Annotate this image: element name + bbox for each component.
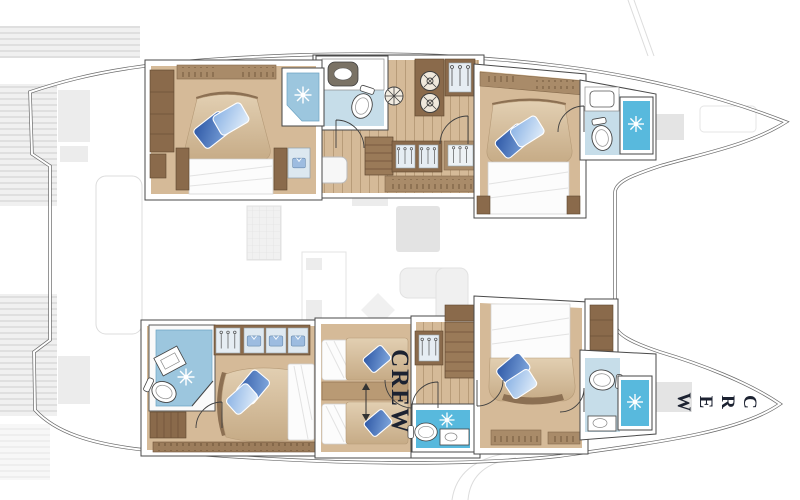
salon-rug-ghost bbox=[247, 206, 281, 260]
sink-icon bbox=[440, 429, 469, 445]
double-bed-icon bbox=[217, 364, 314, 442]
shower-icon bbox=[618, 376, 652, 430]
salon-table-ghost bbox=[396, 206, 440, 252]
transom-step-ghost bbox=[60, 146, 88, 162]
nightstand bbox=[274, 148, 287, 190]
hanger-closet-icon bbox=[445, 59, 475, 96]
anchor-locker-ghost bbox=[700, 106, 756, 132]
vent-strip bbox=[153, 442, 315, 452]
shelf-strip bbox=[177, 65, 276, 79]
bed-foot bbox=[189, 159, 273, 194]
shower-icon bbox=[282, 68, 324, 126]
aft-deck-slats-ghost-2 bbox=[0, 424, 50, 480]
floorplan-canvas: CREW bbox=[0, 0, 800, 500]
crew-cabin-label: CREW bbox=[386, 349, 413, 435]
nightstand bbox=[176, 148, 189, 190]
cabinet-strip bbox=[385, 176, 478, 192]
shower-icon bbox=[620, 97, 653, 154]
wardrobe-icon bbox=[214, 325, 310, 355]
crew-bow-letter: E bbox=[695, 396, 716, 409]
boom-ghost-line bbox=[628, 0, 648, 56]
stairs-icon bbox=[445, 322, 477, 378]
washer-dryer-icon bbox=[415, 59, 444, 116]
cabinet bbox=[445, 305, 475, 321]
starboard-aft-cabin bbox=[141, 320, 324, 456]
crew-bow-letter: W bbox=[673, 393, 694, 412]
foredeck-hatch-ghost-port bbox=[652, 114, 684, 140]
starboard-aft-bathroom bbox=[142, 325, 215, 411]
hanger-closet-icon bbox=[415, 331, 443, 365]
double-bed-icon bbox=[489, 304, 575, 405]
crew-bow-letter: C bbox=[739, 395, 760, 409]
cabinet-strip bbox=[491, 430, 580, 445]
transom-locker-ghost-2 bbox=[58, 356, 90, 404]
port-aft-cabin bbox=[145, 60, 324, 200]
nightstand bbox=[477, 196, 490, 214]
crew-bow-label: CREW bbox=[673, 393, 760, 412]
aft-deck-slats-ghost bbox=[0, 26, 140, 58]
port-companionway bbox=[301, 55, 484, 198]
starboard-companionway bbox=[408, 305, 480, 458]
double-bed-icon bbox=[487, 99, 572, 215]
closet-row bbox=[392, 141, 477, 172]
stairs-icon bbox=[365, 137, 393, 175]
yacht-floorplan: CREW bbox=[0, 0, 800, 500]
bench-icon bbox=[150, 412, 186, 438]
nightstand bbox=[567, 196, 580, 214]
transom-locker-ghost bbox=[58, 90, 90, 142]
bed-foot bbox=[488, 162, 569, 214]
cabinet bbox=[150, 154, 166, 178]
cockpit-bench-ghost bbox=[96, 176, 142, 334]
sink-icon bbox=[590, 91, 614, 107]
cubby-shelf bbox=[288, 148, 310, 178]
toilet-icon bbox=[408, 423, 437, 441]
bed-foot bbox=[491, 304, 570, 360]
sink-icon bbox=[588, 416, 616, 431]
crew-bow-letter: R bbox=[717, 395, 738, 409]
boom-ghost-line-2 bbox=[634, 0, 654, 56]
wardrobe-icon bbox=[150, 70, 174, 152]
port-forward-cabin bbox=[474, 64, 586, 218]
crew-cabin: CREW bbox=[315, 318, 417, 458]
